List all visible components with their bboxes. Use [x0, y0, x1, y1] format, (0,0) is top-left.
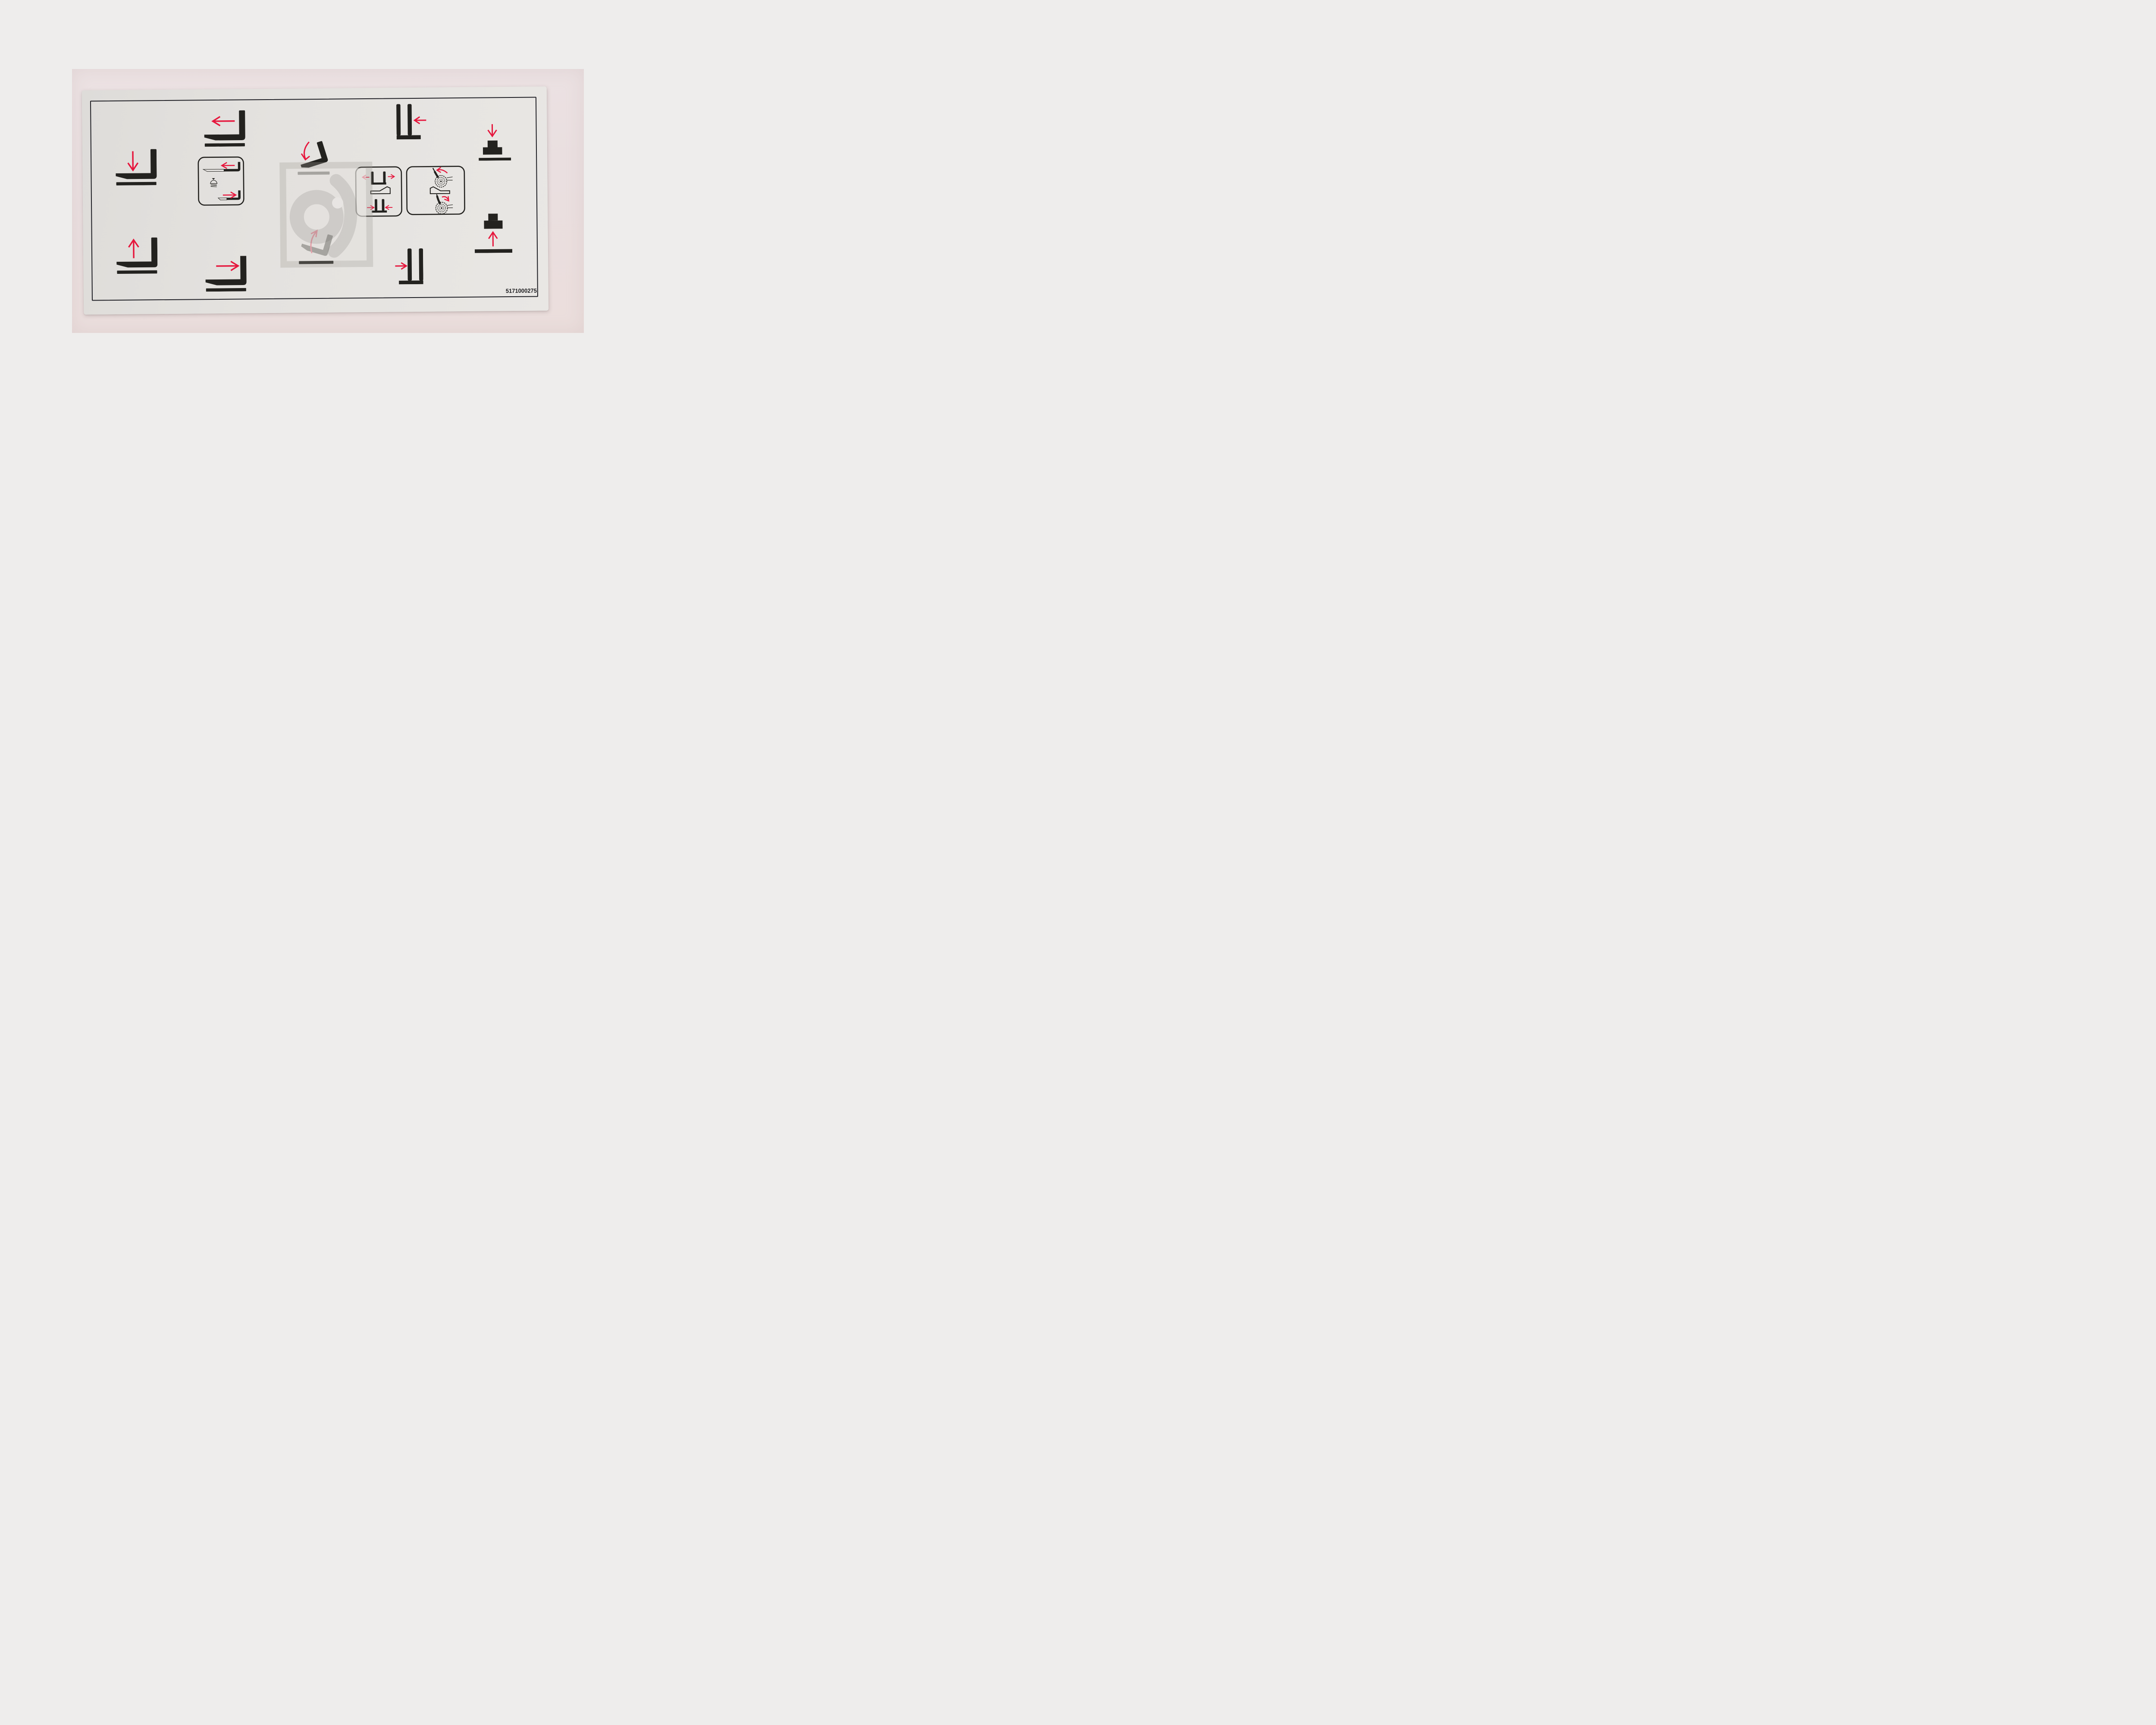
platform-line-icon — [475, 249, 512, 253]
arrow-right-icon — [395, 263, 406, 269]
pictogram-fork-lower — [116, 149, 157, 185]
decal-sticker: 5171000275 — [82, 86, 548, 314]
roll-clamp-icon — [433, 168, 452, 187]
pictogram-fork-shift-right — [205, 256, 247, 292]
pictogram-carriage-left — [396, 104, 427, 140]
arrow-left-icon — [385, 205, 392, 210]
roll-clamp-icon — [436, 194, 453, 214]
fork-side-icon — [205, 256, 247, 285]
arrow-curved-ccw-icon — [437, 167, 447, 173]
pictogram-platform-lower — [478, 124, 511, 161]
pictogram-fork-shift-left — [204, 110, 246, 147]
product-photo: 5171000275 — [72, 69, 584, 333]
platform-line-icon — [479, 158, 511, 161]
wedge-icon — [371, 187, 390, 194]
arrow-right-icon — [216, 261, 238, 270]
arrow-curved-down-icon — [301, 142, 310, 160]
stepped-block-icon — [483, 141, 502, 155]
arrow-up-icon — [128, 240, 138, 258]
stepped-block-icon — [484, 213, 502, 229]
arrow-down-icon — [128, 151, 138, 170]
fork-front-u-icon — [371, 172, 386, 185]
arrow-down-icon — [488, 124, 496, 136]
pictogram-platform-raise — [474, 213, 512, 253]
ground-line-icon — [117, 270, 157, 274]
detent-button-icon — [210, 178, 217, 187]
fork-outline-icon — [203, 162, 240, 172]
part-number-text: 5171000275 — [506, 288, 537, 295]
pictogram-carriage-right — [395, 248, 423, 285]
ground-line-icon — [205, 143, 245, 147]
ground-line-icon — [206, 288, 246, 292]
wedge-icon — [430, 187, 450, 194]
arrow-left-icon — [222, 163, 235, 169]
arrow-right-icon — [223, 192, 236, 198]
fork-side-icon — [204, 110, 245, 141]
fork-side-icon — [116, 238, 158, 268]
arrow-up-icon — [489, 232, 497, 246]
pictogram-clamp-rotate-box — [406, 166, 465, 215]
pictogram-sideshift-detent-box — [197, 156, 244, 206]
arrow-left-icon — [414, 117, 426, 124]
arrow-left-icon — [213, 116, 235, 125]
watermark-overlay — [279, 162, 373, 268]
pictogram-fork-raise — [116, 237, 158, 274]
watermark-logo-glyph — [286, 168, 367, 261]
arrow-curved-cw-icon — [442, 196, 449, 201]
ground-line-icon — [116, 182, 157, 185]
arrow-right-icon — [388, 174, 394, 179]
watermark-frame — [286, 168, 367, 261]
fork-front-base-icon — [372, 199, 387, 213]
